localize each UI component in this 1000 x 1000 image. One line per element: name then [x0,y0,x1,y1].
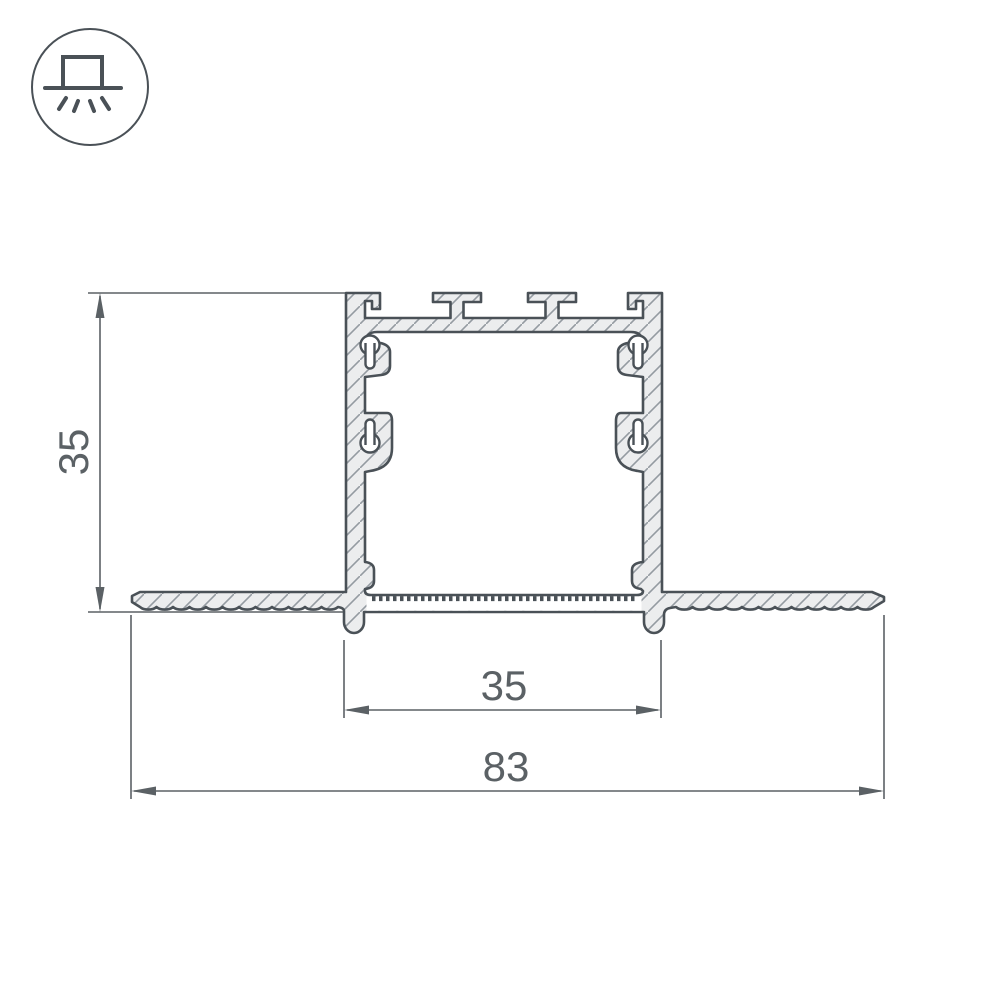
profile-cross-section [132,293,884,633]
arrowhead-right [636,706,661,715]
arrowhead-left [344,706,369,715]
arrowhead-right [859,787,884,796]
dimension-overall-width-label: 83 [483,743,530,790]
dimension-inner-width-label: 35 [481,662,528,709]
dimension-height: 35 [50,293,345,612]
dimension-inner-width: 35 [344,640,661,718]
arrowhead-up [96,293,105,318]
icon-lamp-box [63,57,102,88]
icon-light-rays [59,98,109,111]
arrowhead-down [96,587,105,612]
recessed-luminaire-icon [32,29,148,145]
profile-cavity [365,332,643,595]
technical-drawing: 35 35 83 [0,0,1000,1000]
dimension-height-label: 35 [50,429,97,476]
arrowhead-left [131,787,156,796]
